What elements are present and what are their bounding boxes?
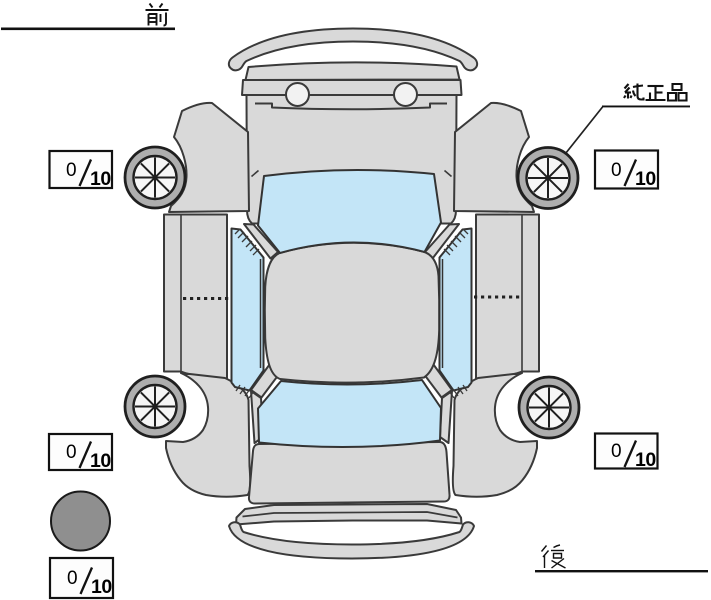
svg-text:10: 10 — [91, 576, 112, 598]
svg-text:0: 0 — [67, 568, 78, 589]
svg-text:0: 0 — [611, 160, 622, 181]
svg-text:0: 0 — [66, 160, 77, 181]
svg-text:0: 0 — [611, 441, 622, 462]
svg-text:10: 10 — [635, 449, 656, 471]
svg-text:10: 10 — [635, 168, 656, 190]
svg-text:0: 0 — [66, 442, 77, 463]
svg-text:10: 10 — [90, 168, 111, 190]
svg-text:10: 10 — [90, 450, 111, 472]
